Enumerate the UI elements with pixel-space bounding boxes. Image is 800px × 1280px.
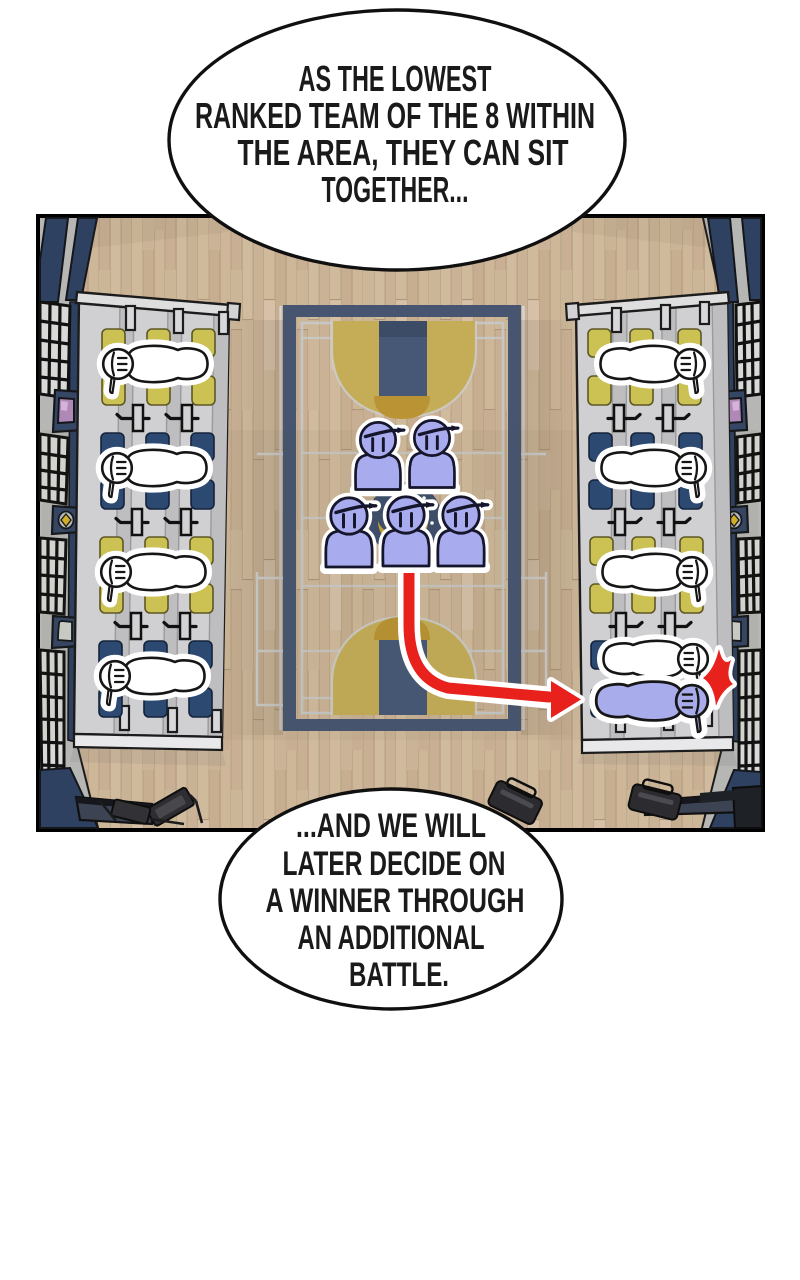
svg-text:...AND WE WILL: ...AND WE WILL	[296, 807, 486, 845]
svg-text:TOGETHER...: TOGETHER...	[322, 169, 469, 210]
svg-text:THE AREA, THEY CAN SIT: THE AREA, THEY CAN SIT	[238, 132, 569, 173]
svg-text:RANKED TEAM OF THE 8 WITHIN: RANKED TEAM OF THE 8 WITHIN	[195, 95, 595, 136]
svg-text:A WINNER THROUGH: A WINNER THROUGH	[266, 882, 525, 920]
svg-text:LATER DECIDE ON: LATER DECIDE ON	[283, 845, 506, 883]
svg-text:AS THE LOWEST: AS THE LOWEST	[299, 58, 492, 99]
svg-text:BATTLE.: BATTLE.	[349, 956, 449, 994]
svg-text:AN ADDITIONAL: AN ADDITIONAL	[298, 919, 485, 957]
